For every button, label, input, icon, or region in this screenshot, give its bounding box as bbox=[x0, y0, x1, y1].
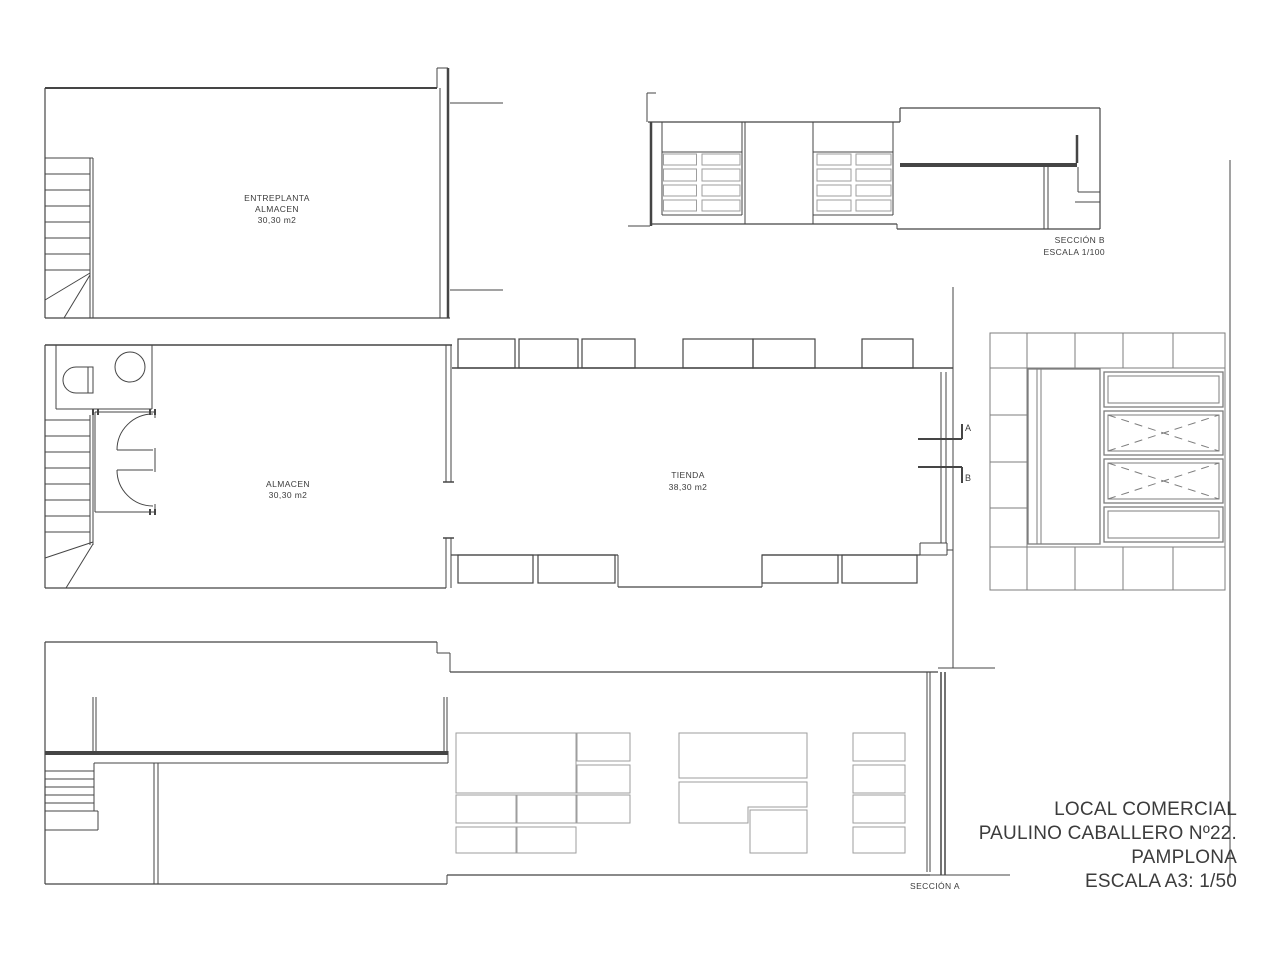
section-b-shelving-left bbox=[662, 122, 742, 215]
section-a-drawing: SECCIÓN A bbox=[45, 642, 1010, 891]
door-swing-lower bbox=[117, 470, 153, 506]
section-a-stairs bbox=[45, 763, 98, 830]
title-city: PAMPLONA bbox=[1131, 847, 1237, 868]
title-project: LOCAL COMERCIAL bbox=[1054, 799, 1237, 820]
section-marker-b-label: B bbox=[965, 473, 971, 483]
section-a-title: SECCIÓN A bbox=[910, 881, 960, 891]
almacen-label: ALMACEN bbox=[266, 479, 310, 489]
section-marker-b: B bbox=[918, 467, 971, 483]
door-swing-upper bbox=[117, 414, 153, 450]
title-block: LOCAL COMERCIAL PAULINO CABALLERO Nº22. … bbox=[979, 799, 1237, 892]
section-a-shelving bbox=[456, 733, 905, 853]
tienda-bottom-wall bbox=[451, 543, 953, 587]
tienda-area: 38,30 m2 bbox=[669, 482, 708, 492]
dividing-wall bbox=[443, 345, 454, 588]
tienda-top-casework bbox=[458, 339, 913, 368]
bathroom bbox=[56, 345, 152, 409]
entreplanta-area: 30,30 m2 bbox=[258, 215, 297, 225]
tienda-label: TIENDA bbox=[671, 470, 705, 480]
entreplanta-label: ENTREPLANTA bbox=[244, 193, 310, 203]
section-b-scale: ESCALA 1/100 bbox=[1043, 247, 1105, 257]
title-address: PAULINO CABALLERO Nº22. bbox=[979, 823, 1237, 844]
section-b-drawing: SECCIÓN B ESCALA 1/100 bbox=[628, 93, 1105, 257]
architectural-drawing-sheet: ENTREPLANTA ALMACEN 30,30 m2 bbox=[0, 0, 1280, 960]
floor-plan-svg: ENTREPLANTA ALMACEN 30,30 m2 bbox=[0, 0, 1280, 960]
almacen-area: 30,30 m2 bbox=[269, 490, 308, 500]
vestibule bbox=[93, 409, 155, 515]
storefront-facade-detail bbox=[990, 333, 1225, 590]
title-scale: ESCALA A3: 1/50 bbox=[1085, 871, 1237, 892]
section-b-shelving-right bbox=[813, 122, 893, 215]
entreplanta-stairs bbox=[45, 158, 93, 318]
facade-window-panels bbox=[1104, 372, 1223, 542]
section-a-end-wall bbox=[927, 672, 945, 875]
section-marker-a-label: A bbox=[965, 423, 971, 433]
ground-floor-stairs bbox=[45, 415, 93, 588]
ground-floor-plan: A B ALMACEN 30,30 m2 TIENDA 38,30 m2 bbox=[45, 339, 971, 588]
sink bbox=[115, 352, 145, 382]
section-marker-a: A bbox=[918, 423, 971, 439]
facade-door-panel bbox=[1028, 369, 1100, 544]
section-b-title: SECCIÓN B bbox=[1055, 235, 1105, 245]
storefront-glazing bbox=[941, 372, 946, 543]
entreplanta-plan: ENTREPLANTA ALMACEN 30,30 m2 bbox=[45, 68, 503, 318]
tienda-bottom-casework bbox=[458, 555, 917, 583]
entreplanta-label-2: ALMACEN bbox=[255, 204, 299, 214]
